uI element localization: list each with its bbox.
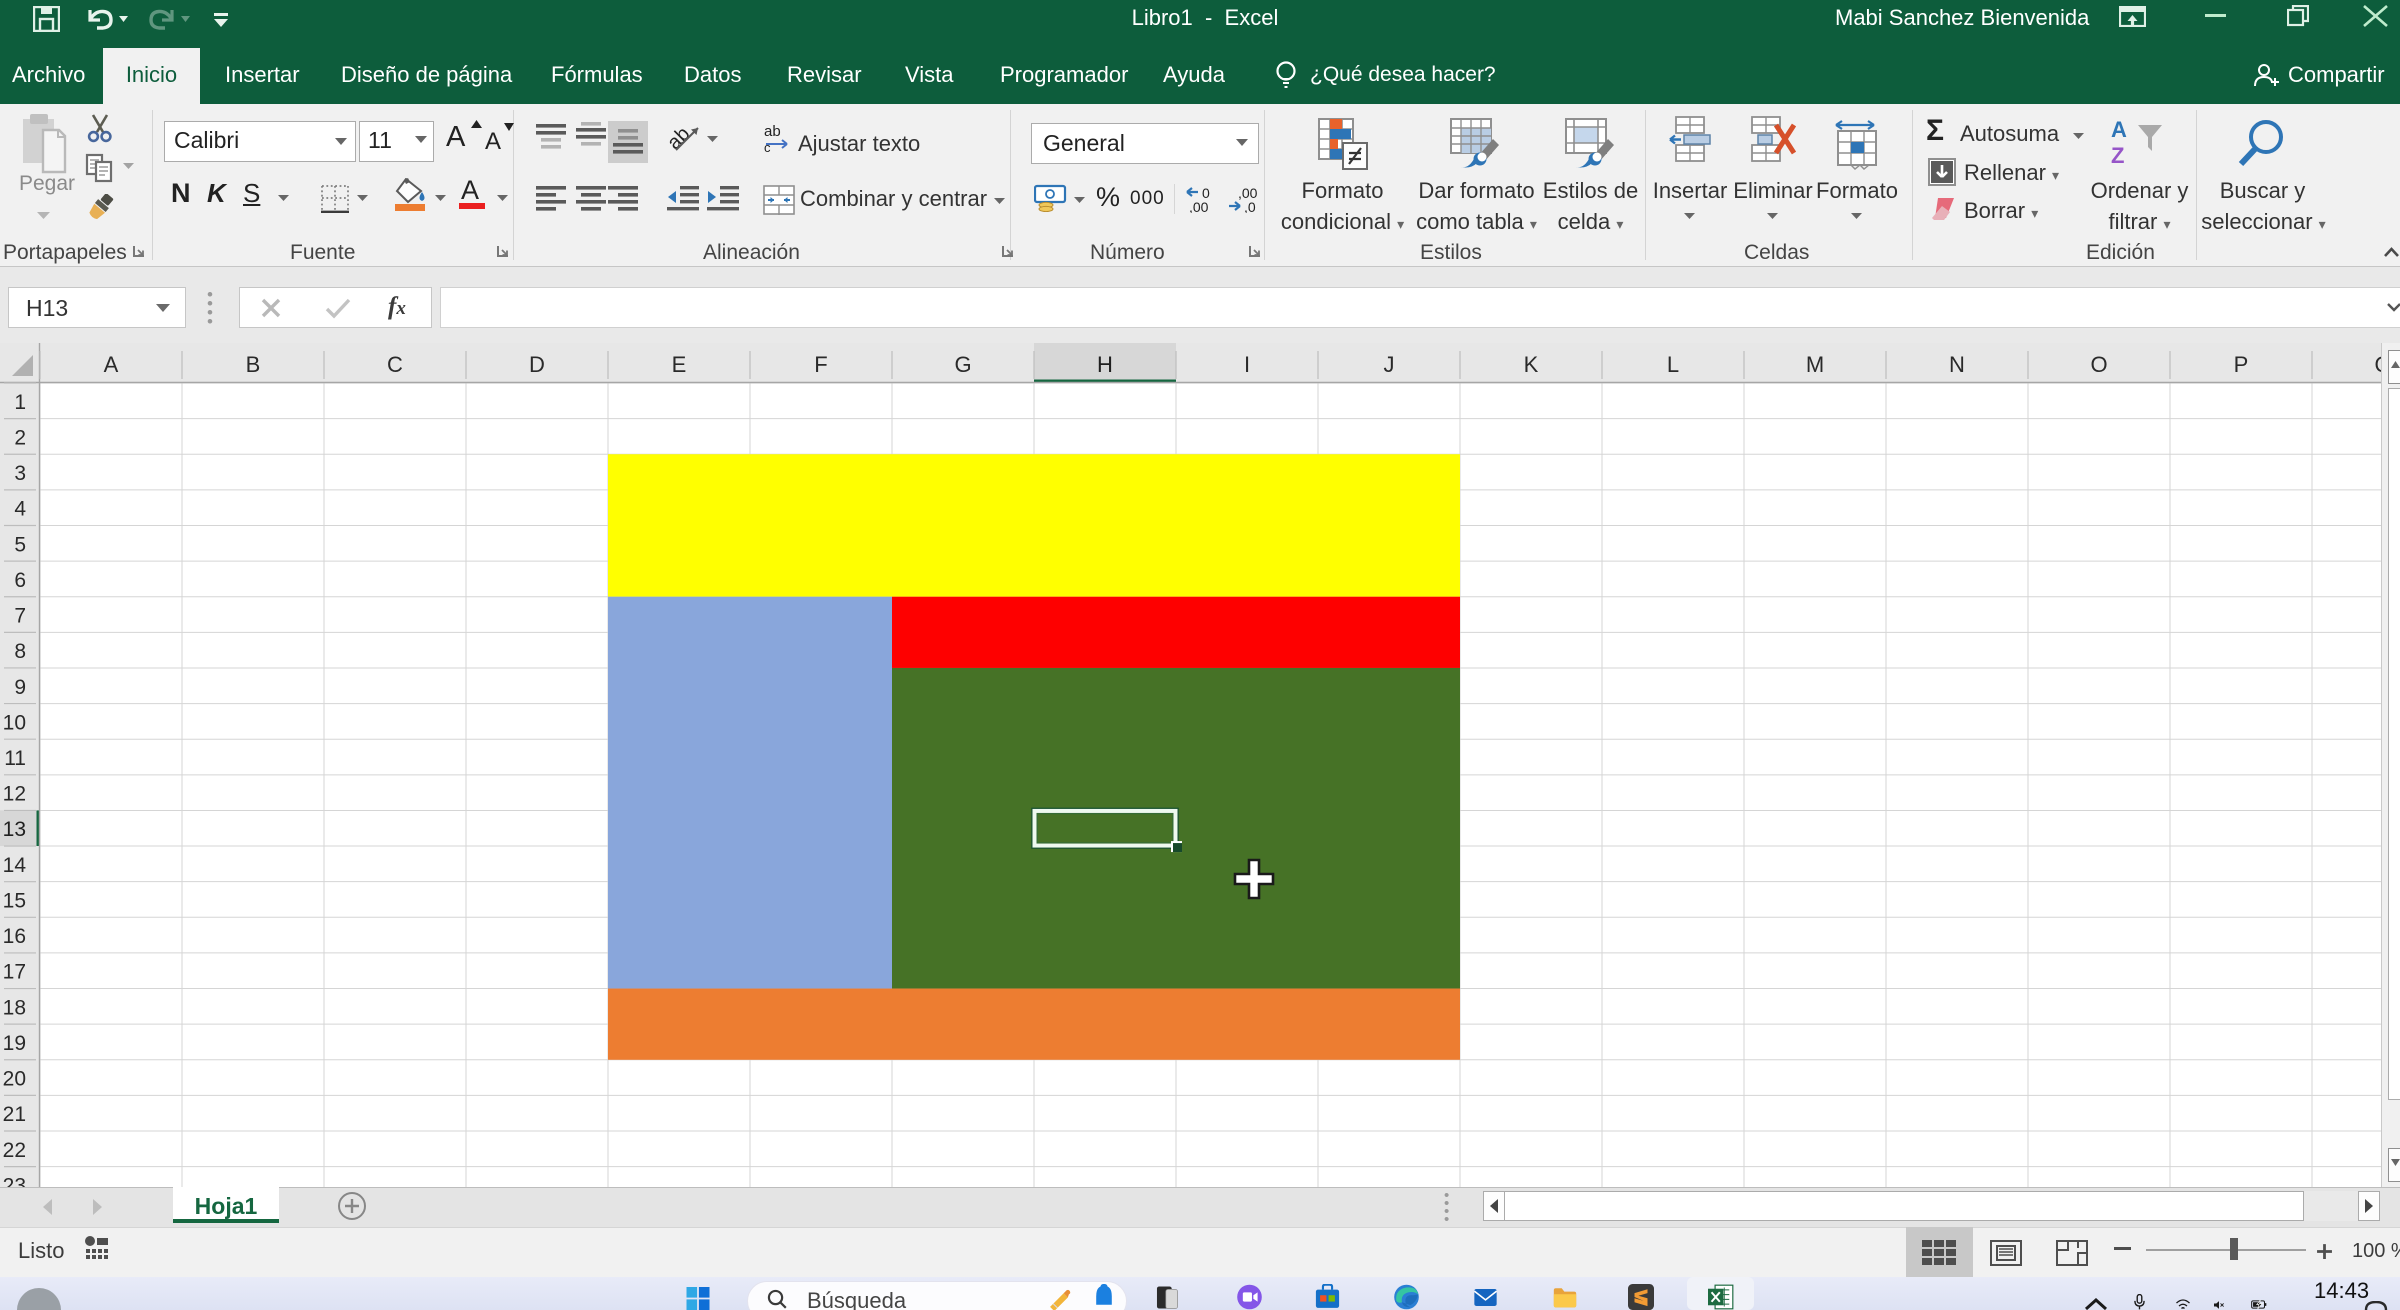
- svg-text:F: F: [814, 352, 827, 377]
- svg-text:18: 18: [3, 996, 26, 1019]
- svg-text:K: K: [1524, 352, 1539, 377]
- svg-text:H: H: [1097, 352, 1113, 377]
- svg-text:,00: ,00: [1189, 199, 1209, 213]
- svg-text:4: 4: [14, 498, 26, 521]
- svg-text:11: 11: [4, 747, 26, 770]
- svg-text:I: I: [1244, 352, 1250, 377]
- svg-text:C: C: [387, 352, 403, 377]
- svg-text:L: L: [1667, 352, 1679, 377]
- svg-text:B: B: [246, 352, 261, 377]
- svg-text:17: 17: [3, 961, 26, 984]
- svg-text:15: 15: [3, 890, 26, 913]
- svg-text:12: 12: [3, 783, 26, 806]
- svg-text:P: P: [2234, 352, 2249, 377]
- svg-text:6: 6: [14, 569, 26, 592]
- svg-text:23: 23: [3, 1174, 26, 1187]
- svg-text:N: N: [1949, 352, 1965, 377]
- svg-text:E: E: [672, 352, 687, 377]
- svg-text:5: 5: [14, 533, 26, 556]
- svg-text:G: G: [954, 352, 971, 377]
- svg-text:13: 13: [3, 818, 26, 841]
- svg-text:J: J: [1384, 352, 1395, 377]
- svg-text:10: 10: [3, 711, 26, 734]
- svg-text:Z: Z: [2111, 143, 2124, 168]
- svg-text:19: 19: [3, 1032, 26, 1055]
- svg-text:20: 20: [3, 1068, 26, 1091]
- svg-text:7: 7: [14, 605, 26, 628]
- svg-text:9: 9: [14, 676, 26, 699]
- svg-text:c: c: [764, 140, 771, 152]
- svg-text:21: 21: [3, 1103, 26, 1126]
- svg-text:ab: ab: [764, 123, 781, 140]
- svg-text:A: A: [104, 352, 119, 377]
- svg-text:A: A: [2111, 117, 2127, 142]
- svg-text:16: 16: [3, 925, 26, 948]
- svg-text:8: 8: [14, 640, 26, 663]
- svg-text:O: O: [2090, 352, 2107, 377]
- svg-text:3: 3: [14, 462, 26, 485]
- svg-text:ab: ab: [668, 123, 694, 154]
- svg-text:1: 1: [14, 391, 26, 414]
- svg-text:2: 2: [14, 426, 26, 449]
- svg-text:22: 22: [3, 1139, 26, 1162]
- svg-text:M: M: [1806, 352, 1824, 377]
- svg-text:14: 14: [3, 854, 27, 877]
- svg-text:D: D: [529, 352, 545, 377]
- svg-text:,0: ,0: [1244, 199, 1256, 213]
